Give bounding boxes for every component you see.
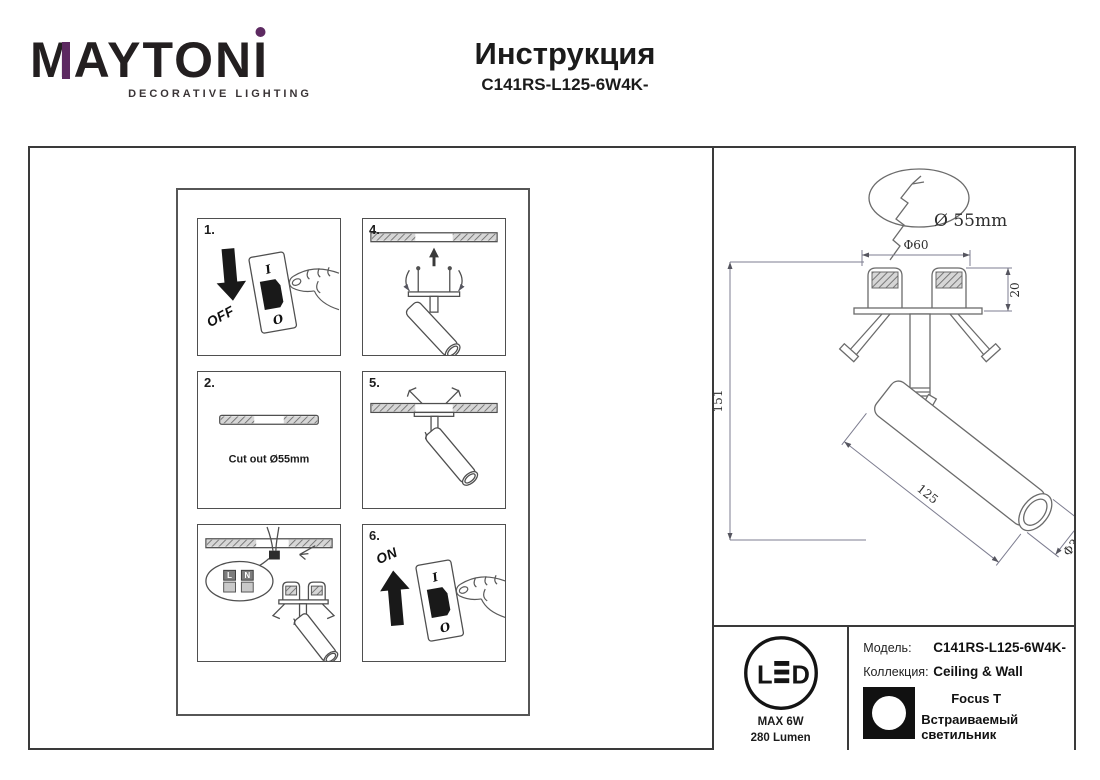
model-row: Модель:C141RS-L125-6W4K-: [863, 639, 1066, 657]
svg-text:L: L: [757, 662, 773, 690]
technical-drawing: Ø 55mm Φ60: [714, 148, 1074, 625]
magnifier-bubble: [206, 561, 273, 600]
hand-icon: [289, 267, 339, 309]
luminaire-circle: [872, 696, 906, 730]
flange: [408, 292, 459, 296]
spec-table: L D MAX 6W 280 Lumen Модель:C141RS-L125-…: [714, 625, 1074, 750]
instruction-step-3: L N: [197, 524, 341, 662]
body-length-label: 125: [914, 482, 941, 507]
collection-row: Коллекция:Ceiling & Wall: [863, 663, 1066, 681]
spring-clips: [406, 267, 462, 292]
series-name: Focus T: [921, 691, 1066, 706]
svg-text:D: D: [791, 662, 809, 690]
recess-depth-label: 20: [1008, 282, 1022, 297]
logo-letter-m: M: [30, 34, 74, 86]
model-value: C141RS-L125-6W4K-: [933, 640, 1066, 655]
page-title: Инструкция: [365, 36, 765, 72]
page-model-code: C141RS-L125-6W4K-: [365, 75, 765, 95]
brand-wordmark: MAYTONI: [30, 34, 312, 86]
maytoni-logo: MAYTONI DECORATIVE LIGHTING: [30, 34, 312, 100]
recessed-luminaire-icon: [863, 687, 915, 739]
step-number: 4.: [369, 222, 380, 237]
terminal-l-label: L: [227, 571, 232, 580]
installed-fixture-illustration: [363, 372, 505, 508]
step-number: 5.: [369, 375, 380, 390]
body-diameter-label: Φ30: [1060, 530, 1074, 558]
wall-switch: I O: [416, 560, 464, 642]
lamp-body: [424, 426, 480, 488]
cutout-illustration: Cut out Ø55mm: [198, 372, 340, 508]
up-arrow: [378, 569, 412, 627]
cutout-dimension-label: Ø 55mm: [934, 211, 1007, 231]
off-label: OFF: [204, 303, 237, 330]
wiring-illustration: L N: [198, 525, 340, 661]
led-logo: L D: [742, 634, 820, 712]
logo-letters-mid: AYTON: [74, 32, 254, 88]
wall-switch: I O: [249, 252, 297, 334]
springs-above: [407, 388, 460, 404]
switch-on-illustration: ON I O: [363, 525, 505, 661]
instruction-sheet: MAYTONI DECORATIVE LIGHTING Инструкция C…: [0, 0, 1100, 780]
max-power: MAX 6W: [758, 716, 804, 728]
wire-connector: [269, 551, 280, 560]
on-label: ON: [374, 544, 400, 567]
luminous-flux: 280 Lumen: [751, 732, 811, 744]
stem: [430, 296, 438, 312]
insert-fixture-illustration: [363, 219, 505, 355]
content-frame: 1. OFF I O: [28, 146, 1076, 750]
series-row: Focus T Встраиваемый светильник: [863, 687, 1066, 742]
collection-value: Ceiling & Wall: [933, 664, 1023, 679]
lamp-body: [293, 612, 340, 661]
instruction-step-5: 5.: [362, 371, 506, 509]
led-spec-cell: L D MAX 6W 280 Lumen: [714, 627, 849, 750]
brand-tagline: DECORATIVE LIGHTING: [30, 88, 312, 100]
down-arrow: [214, 247, 248, 302]
cutout-caption: Cut out Ø55mm: [229, 454, 310, 466]
hand-icon: [456, 575, 505, 617]
height-label: 151: [714, 390, 725, 413]
mounting-bracket: [273, 582, 334, 618]
instruction-step-6: 6. ON I O: [362, 524, 506, 662]
logo-purple-dot: [256, 27, 266, 37]
instruction-step-4: 4.: [362, 218, 506, 356]
step-number: 2.: [204, 375, 215, 390]
recessed-mount: [840, 268, 1001, 406]
up-arrow: [429, 248, 439, 267]
logo-purple-stroke: [62, 42, 70, 79]
installation-steps-box: 1. OFF I O: [176, 188, 530, 716]
steps-grid: 1. OFF I O: [178, 190, 528, 690]
step-number: 1.: [204, 222, 215, 237]
collection-label: Коллекция:: [863, 665, 933, 679]
step-number: 6.: [369, 528, 380, 543]
title-block: Инструкция C141RS-L125-6W4K-: [365, 36, 765, 95]
logo-letter-i: I: [253, 34, 269, 86]
model-spec-cell: Модель:C141RS-L125-6W4K- Коллекция:Ceili…: [849, 627, 1074, 750]
fixture-type: Встраиваемый светильник: [921, 712, 1066, 742]
instruction-step-2: 2. Cut out Ø55mm: [197, 371, 341, 509]
instruction-step-1: 1. OFF I O: [197, 218, 341, 356]
model-label: Модель:: [863, 641, 933, 655]
top-diameter-label: Φ60: [903, 238, 928, 252]
switch-off-illustration: OFF I O: [198, 219, 340, 355]
lamp-cylinder: 125 Φ30: [842, 376, 1074, 599]
terminal-n-label: N: [244, 571, 250, 580]
